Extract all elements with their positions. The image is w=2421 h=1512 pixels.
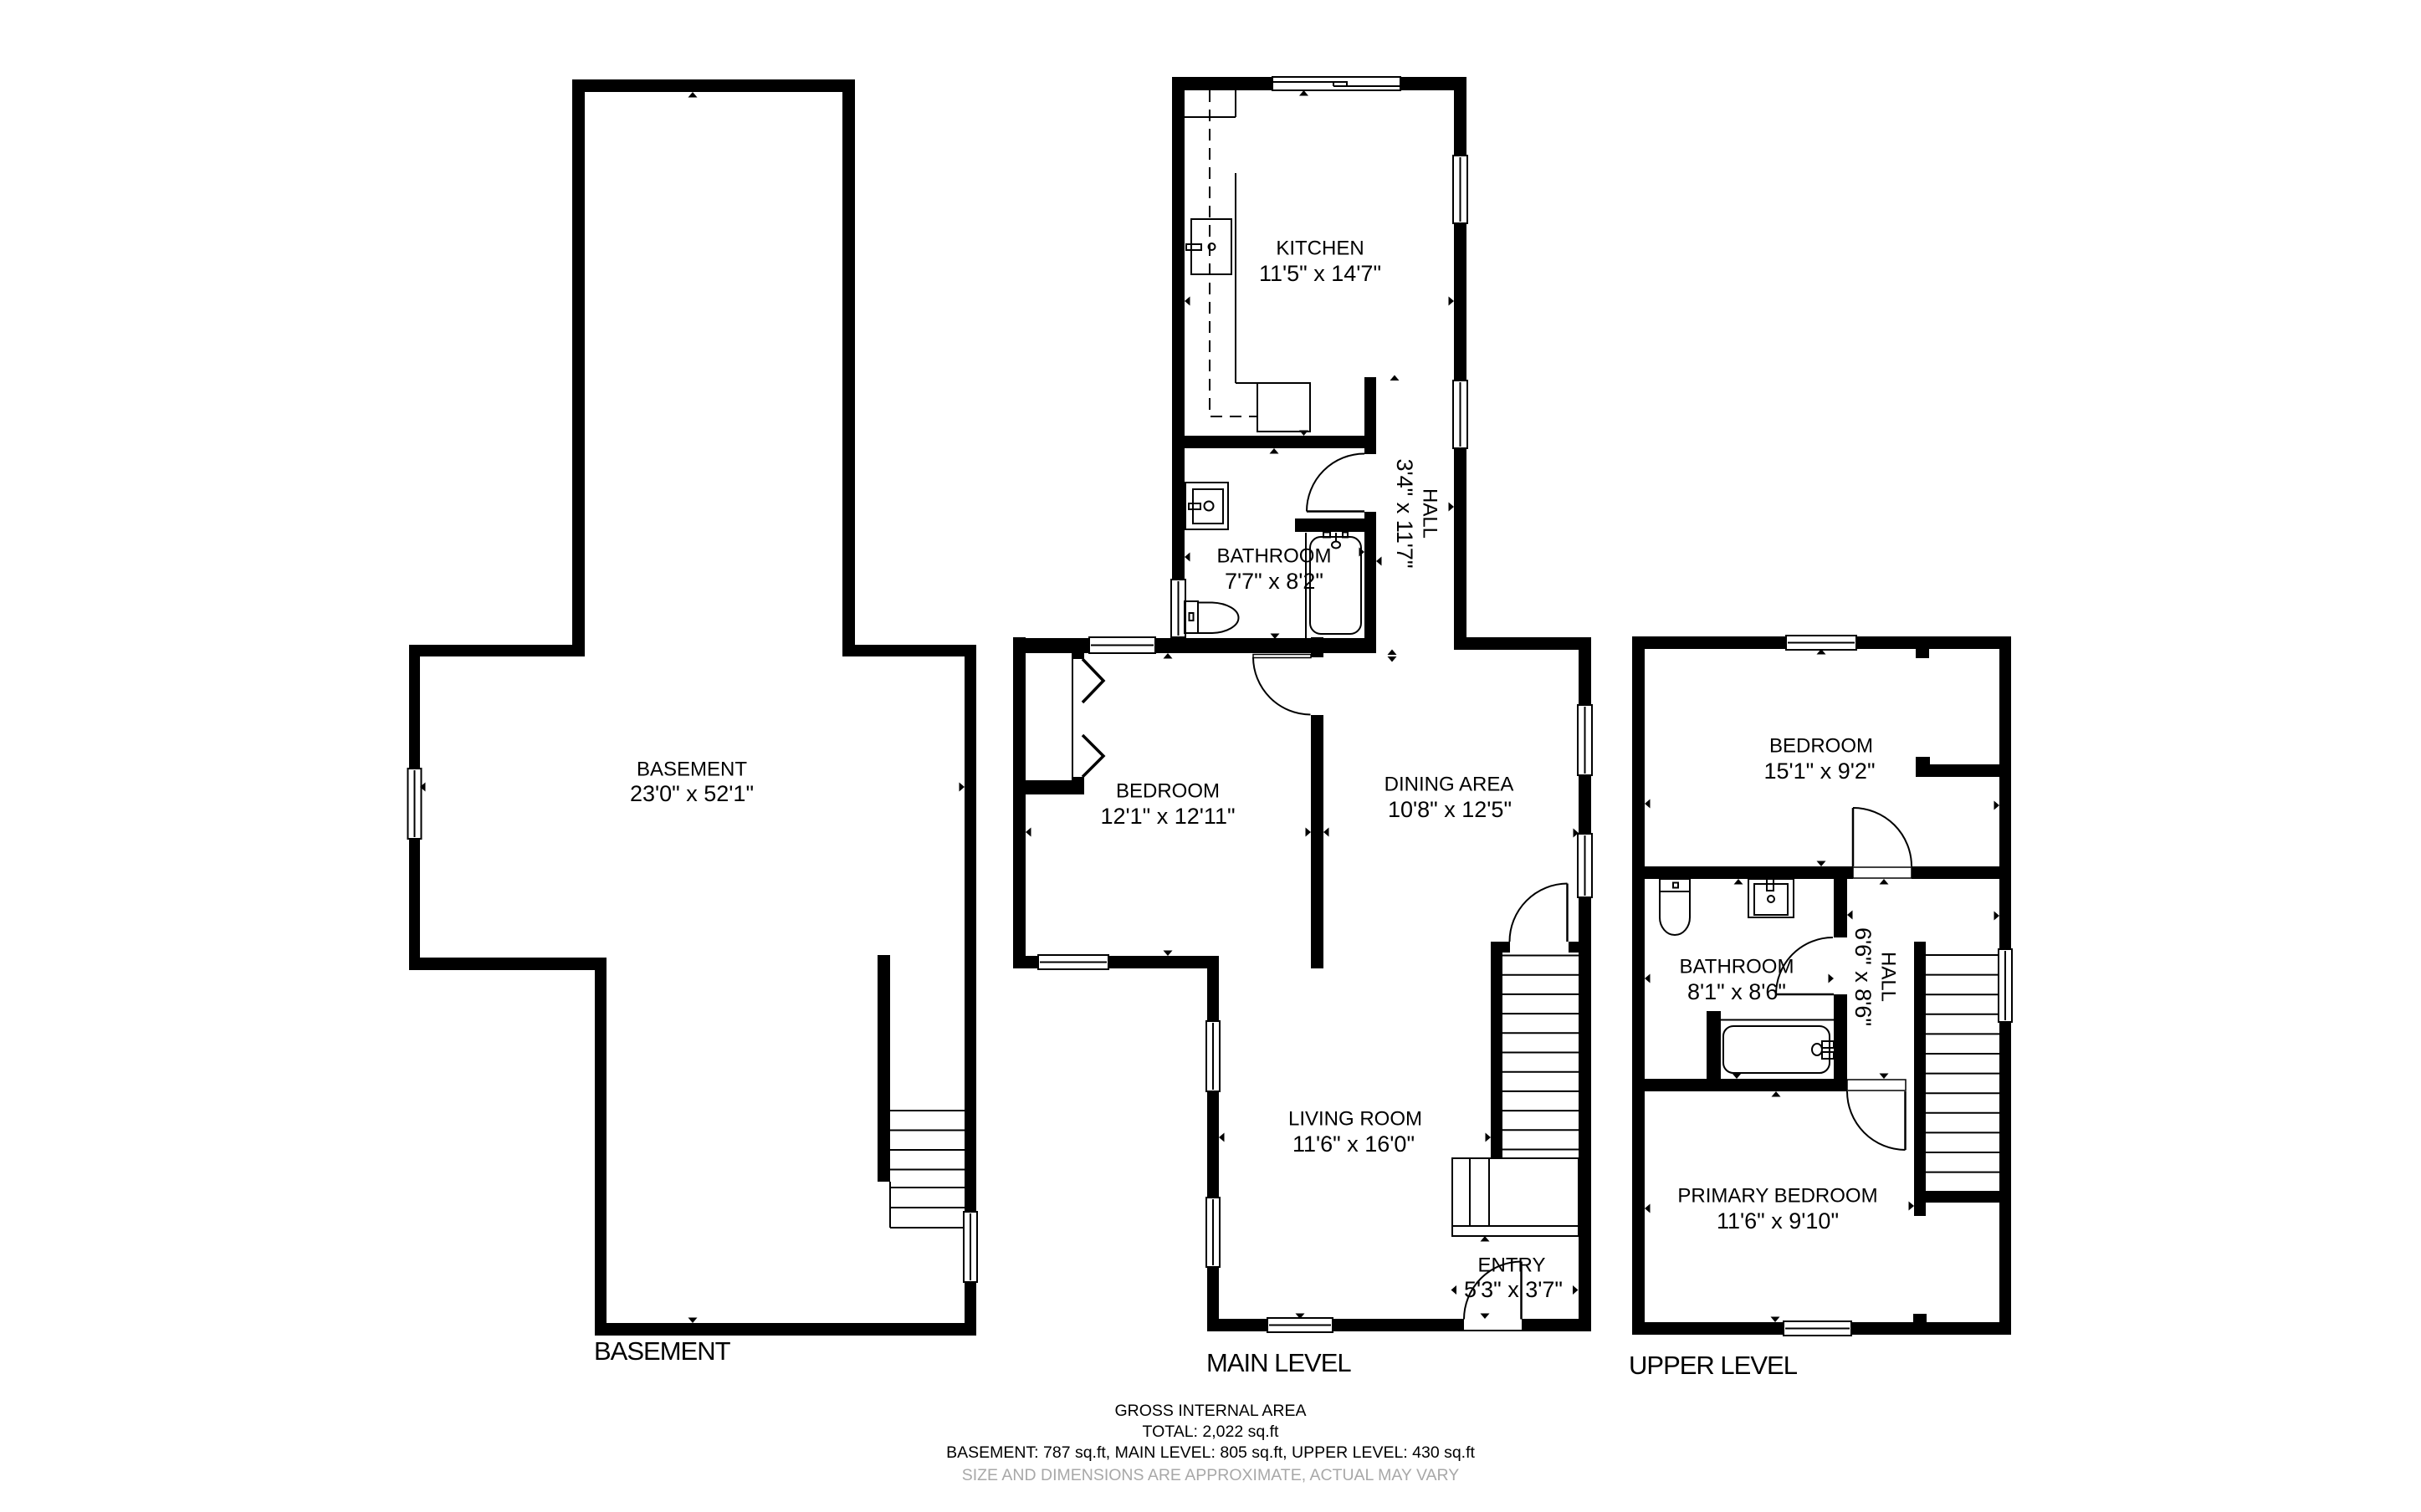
- svg-text:LIVING ROOM: LIVING ROOM: [1288, 1108, 1422, 1131]
- svg-text:HALL: HALL: [1877, 952, 1900, 1002]
- svg-text:BATHROOM: BATHROOM: [1680, 956, 1794, 978]
- svg-text:SIZE AND DIMENSIONS ARE APPROX: SIZE AND DIMENSIONS ARE APPROXIMATE, ACT…: [962, 1466, 1460, 1484]
- svg-text:10'8" x 12'5": 10'8" x 12'5": [1388, 797, 1512, 822]
- svg-text:HALL: HALL: [1419, 488, 1441, 539]
- svg-text:UPPER LEVEL: UPPER LEVEL: [1629, 1351, 1798, 1380]
- svg-text:3'4" x 11'7": 3'4" x 11'7": [1392, 458, 1417, 568]
- svg-text:23'0" x 52'1": 23'0" x 52'1": [630, 781, 754, 806]
- svg-text:BATHROOM: BATHROOM: [1217, 545, 1332, 568]
- svg-text:12'1" x 12'11": 12'1" x 12'11": [1100, 804, 1235, 829]
- svg-text:8'1" x 8'6": 8'1" x 8'6": [1687, 979, 1786, 1004]
- svg-text:5'3" x 3'7": 5'3" x 3'7": [1464, 1277, 1563, 1302]
- svg-text:GROSS INTERNAL AREA: GROSS INTERNAL AREA: [1114, 1402, 1306, 1420]
- svg-text:MAIN LEVEL: MAIN LEVEL: [1206, 1348, 1351, 1377]
- svg-text:BASEMENT: 787 sq.ft, MAIN LEVE: BASEMENT: 787 sq.ft, MAIN LEVEL: 805 sq.…: [946, 1443, 1475, 1462]
- svg-text:TOTAL: 2,022 sq.ft: TOTAL: 2,022 sq.ft: [1143, 1423, 1280, 1441]
- svg-text:DINING AREA: DINING AREA: [1385, 774, 1514, 796]
- svg-text:15'1" x 9'2": 15'1" x 9'2": [1763, 759, 1875, 784]
- svg-text:7'7" x 8'2": 7'7" x 8'2": [1225, 569, 1323, 594]
- svg-text:11'6" x 16'0": 11'6" x 16'0": [1292, 1131, 1415, 1157]
- svg-text:BASEMENT: BASEMENT: [594, 1336, 731, 1366]
- svg-text:11'5" x 14'7": 11'5" x 14'7": [1259, 261, 1381, 286]
- svg-text:BASEMENT: BASEMENT: [637, 759, 747, 781]
- svg-text:11'6" x 9'10": 11'6" x 9'10": [1717, 1208, 1839, 1234]
- svg-text:PRIMARY BEDROOM: PRIMARY BEDROOM: [1677, 1185, 1877, 1208]
- svg-text:BEDROOM: BEDROOM: [1769, 735, 1873, 758]
- svg-text:KITCHEN: KITCHEN: [1276, 238, 1364, 260]
- svg-text:ENTRY: ENTRY: [1478, 1254, 1546, 1277]
- svg-text:6'6" x 8'6": 6'6" x 8'6": [1850, 927, 1876, 1026]
- svg-text:BEDROOM: BEDROOM: [1116, 780, 1220, 803]
